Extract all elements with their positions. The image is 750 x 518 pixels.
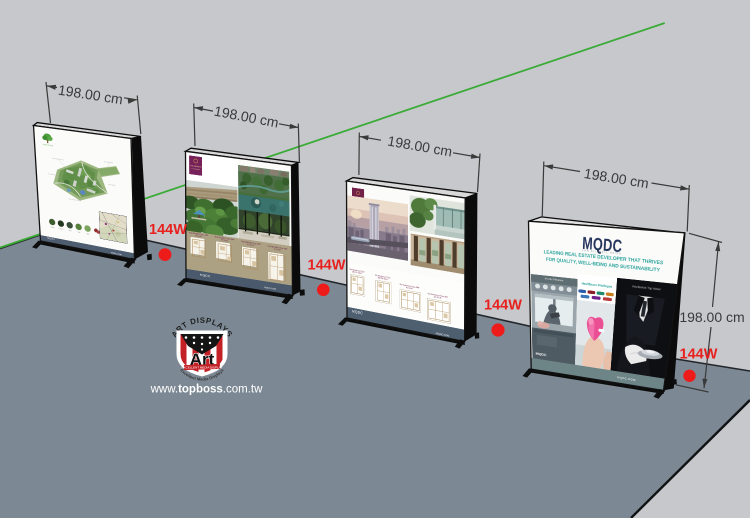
svg-text:144W: 144W [308,257,346,273]
svg-text:www.topboss.com.tw: www.topboss.com.tw [150,384,264,396]
svg-text:198.00 cm: 198.00 cm [386,133,453,160]
svg-text:198.00 cm: 198.00 cm [583,165,650,191]
svg-text:144W: 144W [484,297,522,313]
svg-text:198.00 cm: 198.00 cm [213,103,280,131]
svg-text:198.00 cm: 198.00 cm [57,82,124,108]
svg-text:144W: 144W [680,346,718,362]
svg-text:EXCELLENT MEDIA DISPLAY: EXCELLENT MEDIA DISPLAY [182,366,223,370]
svg-text:198.00 cm: 198.00 cm [679,309,744,325]
svg-text:144W: 144W [149,222,187,238]
